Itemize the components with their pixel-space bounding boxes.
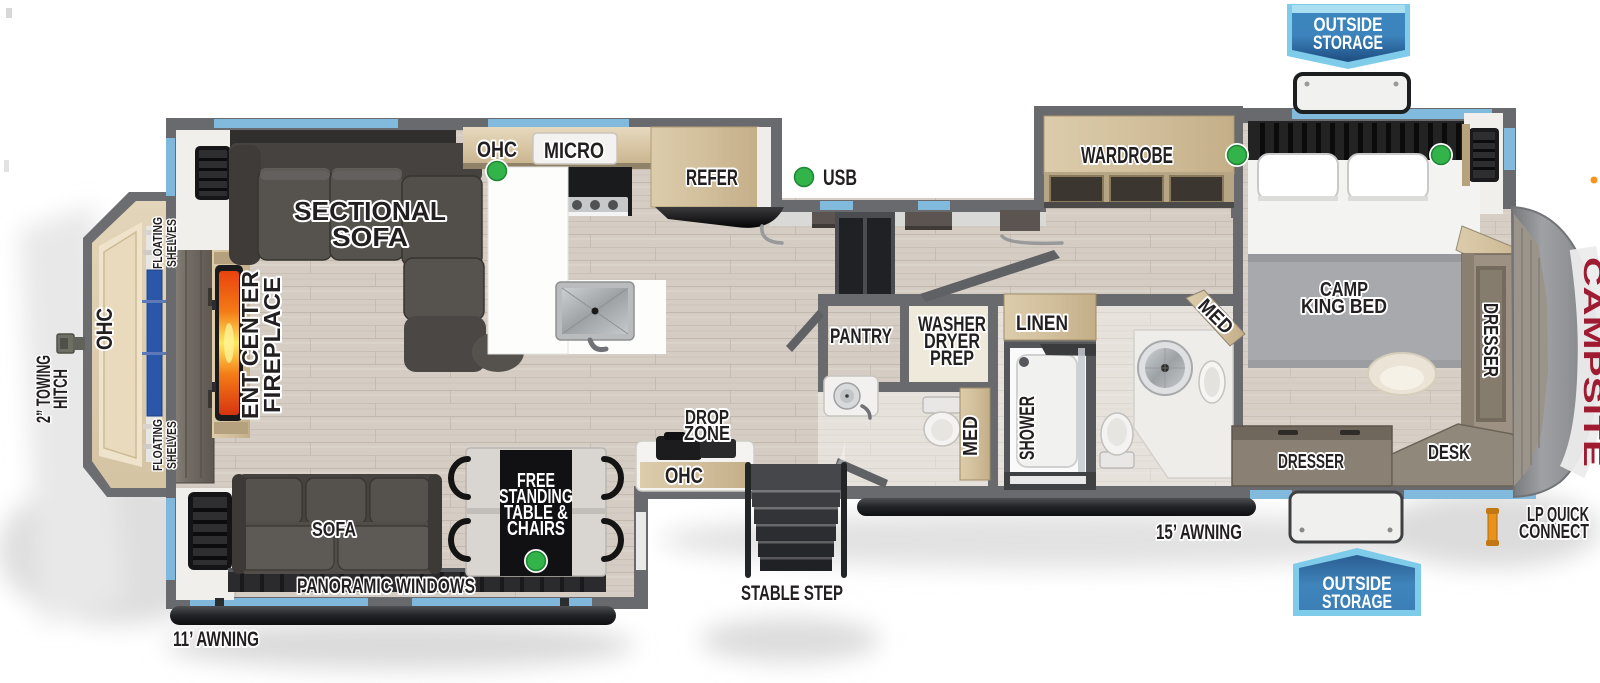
svg-text:FLOATING: FLOATING (150, 217, 165, 269)
svg-text:PANORAMIC WINDOWS: PANORAMIC WINDOWS (297, 575, 475, 598)
svg-text:15’ AWNING: 15’ AWNING (1156, 521, 1242, 544)
svg-text:SHELVES: SHELVES (164, 421, 179, 469)
svg-text:USB: USB (823, 165, 857, 190)
svg-text:FIREPLACE: FIREPLACE (259, 277, 285, 413)
svg-text:PREP: PREP (930, 347, 974, 370)
svg-text:CAMPSITE: CAMPSITE (1578, 257, 1600, 467)
svg-text:ZONE: ZONE (684, 423, 730, 445)
svg-text:OHC: OHC (92, 308, 117, 350)
svg-text:STABLE STEP: STABLE STEP (741, 582, 843, 605)
svg-text:SOFA: SOFA (312, 519, 356, 541)
svg-text:DESK: DESK (1428, 442, 1470, 464)
svg-text:PANTRY: PANTRY (830, 325, 892, 348)
svg-text:KING BED: KING BED (1301, 296, 1387, 318)
svg-text:HITCH: HITCH (51, 369, 72, 409)
svg-text:OHC: OHC (477, 137, 517, 162)
svg-text:DRESSER: DRESSER (1479, 303, 1501, 377)
svg-text:WARDROBE: WARDROBE (1081, 142, 1173, 168)
svg-text:SHELVES: SHELVES (164, 219, 179, 267)
svg-text:STORAGE: STORAGE (1313, 33, 1383, 54)
svg-text:DRESSER: DRESSER (1278, 451, 1344, 473)
svg-text:MED: MED (960, 416, 982, 456)
svg-text:REFER: REFER (686, 165, 738, 190)
svg-text:OHC: OHC (665, 463, 703, 488)
svg-text:MICRO: MICRO (544, 138, 604, 163)
svg-text:11’ AWNING: 11’ AWNING (173, 628, 259, 651)
svg-text:SHOWER: SHOWER (1016, 396, 1039, 460)
svg-text:LINEN: LINEN (1016, 312, 1068, 335)
svg-text:CHAIRS: CHAIRS (507, 518, 565, 540)
svg-text:FLOATING: FLOATING (150, 419, 165, 471)
svg-text:CONNECT: CONNECT (1519, 521, 1589, 543)
svg-text:STORAGE: STORAGE (1322, 592, 1392, 613)
svg-text:SOFA: SOFA (332, 222, 408, 252)
